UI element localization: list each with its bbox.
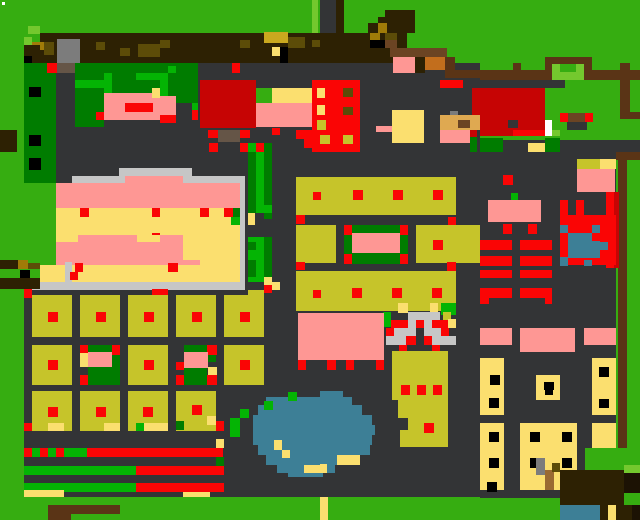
- silver-roof-block: [72, 176, 125, 183]
- window-block: [487, 482, 497, 492]
- red-marker-block: [192, 405, 202, 415]
- fence-block: [616, 152, 640, 160]
- gold-foliage-block: [378, 23, 387, 33]
- fence-block: [620, 63, 630, 119]
- pink-roof-block: [488, 200, 541, 222]
- red-marker-block: [96, 407, 106, 417]
- soil-block: [385, 10, 415, 33]
- silver-roof-block: [394, 328, 416, 336]
- red-marker-block: [240, 312, 250, 322]
- dark-red-roof-block: [470, 130, 477, 137]
- pale-roof-block: [304, 465, 320, 473]
- water-block: [592, 225, 600, 233]
- dark-red-roof-block: [200, 80, 256, 128]
- bright-hedge-block: [32, 448, 40, 457]
- window-block: [24, 56, 32, 63]
- red-marker-block: [48, 407, 58, 417]
- red-marker-block: [48, 312, 58, 322]
- red-marker-block: [592, 233, 600, 241]
- red-marker-block: [520, 270, 552, 278]
- silver-roof-block: [408, 320, 416, 328]
- red-marker-block: [200, 208, 209, 217]
- dark-hedge-block: [264, 143, 272, 152]
- dark-hedge-block: [264, 237, 272, 277]
- dark-red-roof-block: [480, 130, 513, 136]
- olive-foliage-block: [343, 88, 353, 97]
- fence-block: [584, 57, 592, 80]
- red-marker-block: [416, 320, 424, 328]
- window-block: [562, 432, 572, 442]
- silver-roof-block: [183, 176, 245, 183]
- red-marker-block: [192, 110, 198, 120]
- pale-roof-block: [274, 440, 282, 450]
- window-block: [370, 40, 385, 48]
- pink-roof-block: [480, 328, 512, 345]
- pale-roof-block: [608, 505, 616, 520]
- lime-foliage-block: [28, 26, 40, 34]
- white-dot-block: [545, 130, 552, 136]
- window-block: [599, 399, 609, 408]
- red-marker-block: [296, 215, 305, 224]
- red-marker-block: [207, 375, 217, 385]
- red-marker-block: [433, 240, 443, 250]
- red-marker-block: [48, 360, 58, 370]
- silver-roof-block: [119, 168, 192, 176]
- red-marker-block: [136, 466, 224, 475]
- pale-roof-block: [320, 464, 327, 473]
- pink-roof-block: [256, 103, 312, 127]
- red-marker-block: [448, 217, 456, 225]
- bright-hedge-block: [160, 73, 168, 97]
- red-marker-block: [432, 320, 448, 328]
- bright-hedge-block: [264, 401, 273, 410]
- red-marker-block: [480, 240, 512, 250]
- red-marker-block: [440, 80, 463, 88]
- red-marker-block: [296, 130, 312, 139]
- red-marker-block: [87, 448, 223, 457]
- window-block: [489, 458, 499, 468]
- red-marker-block: [160, 115, 176, 123]
- pale-roof-block: [208, 367, 217, 375]
- red-marker-block: [346, 360, 354, 370]
- pale-roof-block: [398, 303, 408, 313]
- fence-block: [545, 57, 552, 80]
- red-marker-block: [376, 360, 384, 370]
- pale-roof-block: [320, 497, 328, 520]
- pale-roof-block: [317, 88, 325, 98]
- red-marker-block: [352, 288, 362, 298]
- pale-roof-block: [317, 105, 325, 115]
- lime-foliage-block: [24, 37, 32, 45]
- pale-roof-block: [216, 439, 224, 448]
- dark-hedge-block: [112, 355, 120, 367]
- dark-hedge-block: [88, 367, 120, 385]
- soil-block: [600, 505, 608, 520]
- dark-hedge-block: [248, 152, 256, 213]
- yellow-building-block: [343, 135, 353, 144]
- red-marker-block: [503, 175, 513, 185]
- dark-hedge-block: [248, 260, 256, 277]
- red-marker-block: [136, 483, 224, 492]
- dark-hedge-block: [264, 152, 272, 205]
- window-block: [599, 367, 609, 377]
- red-marker-block: [480, 256, 512, 266]
- red-marker-block: [480, 270, 512, 278]
- pale-roof-block: [448, 319, 456, 328]
- red-marker-block: [125, 103, 153, 112]
- grass-block: [560, 64, 576, 72]
- fence-block: [447, 70, 480, 78]
- red-marker-block: [313, 192, 321, 200]
- red-marker-block: [406, 336, 416, 345]
- red-marker-block: [56, 448, 64, 457]
- window-block: [489, 432, 499, 442]
- pale-roof-block: [392, 110, 424, 143]
- copper-roof-block: [425, 57, 447, 70]
- water-block: [560, 257, 568, 266]
- silver-roof-block: [424, 328, 441, 336]
- pale-roof-block: [152, 88, 160, 98]
- road-block: [320, 0, 336, 33]
- red-marker-block: [393, 190, 403, 200]
- lime-foliage-block: [552, 130, 560, 136]
- taupe-door-block: [57, 63, 75, 73]
- dark-hedge-block: [184, 368, 207, 385]
- pink-roof-block: [88, 352, 112, 368]
- red-marker-block: [240, 360, 250, 370]
- pale-roof-block: [272, 88, 312, 103]
- soil-block: [0, 260, 18, 269]
- pale-roof-block: [56, 235, 78, 242]
- yellow-building-block: [398, 400, 408, 418]
- red-marker-block: [344, 254, 352, 264]
- window-block: [280, 47, 288, 63]
- olive-foliage-block: [312, 40, 320, 47]
- red-marker-block: [344, 225, 352, 235]
- trunk-block: [568, 113, 585, 122]
- dark-hedge-block: [248, 242, 256, 250]
- red-marker-block: [585, 113, 593, 122]
- dark-hedge-block: [480, 138, 503, 152]
- red-marker-block: [224, 208, 233, 217]
- pink-roof-block: [520, 328, 575, 352]
- water-block: [253, 415, 372, 425]
- red-marker-block: [447, 262, 456, 271]
- red-marker-block: [24, 448, 32, 457]
- dark-hedge-block: [216, 457, 224, 466]
- red-marker-block: [112, 345, 120, 355]
- pale-roof-block: [137, 235, 160, 242]
- pink-roof-block: [393, 57, 415, 73]
- gold-roof-block: [264, 32, 288, 43]
- red-marker-block: [400, 254, 408, 264]
- stone-block: [536, 458, 545, 475]
- bright-hedge-block: [24, 466, 136, 475]
- fence-block: [622, 112, 640, 119]
- red-marker-block: [176, 375, 184, 385]
- fence-block: [592, 70, 640, 80]
- yellow-building-block: [296, 225, 336, 263]
- red-marker-block: [520, 256, 552, 266]
- pale-roof-block: [282, 450, 290, 458]
- bright-hedge-block: [136, 423, 144, 431]
- pale-roof-block: [592, 423, 616, 448]
- window-block: [29, 158, 41, 170]
- door-block: [545, 470, 554, 490]
- soil-block: [415, 57, 425, 73]
- red-marker-block: [480, 288, 489, 304]
- pink-roof-block: [577, 169, 615, 192]
- fence-block: [513, 63, 521, 70]
- red-marker-block: [298, 360, 306, 370]
- red-marker-block: [80, 208, 89, 217]
- olive-foliage-block: [343, 107, 353, 115]
- dark-hedge-block: [470, 137, 477, 152]
- dark-hedge-block: [184, 345, 207, 352]
- pale-roof-block: [264, 277, 272, 285]
- dark-hedge-block: [208, 355, 216, 362]
- olive-foliage-block: [44, 42, 54, 55]
- red-marker-block: [192, 312, 202, 322]
- red-marker-block: [528, 224, 537, 234]
- bright-hedge-block: [231, 217, 240, 225]
- road-block: [567, 122, 587, 130]
- olive-foliage-block: [160, 40, 170, 48]
- red-marker-block: [75, 263, 83, 272]
- red-marker-block: [353, 190, 363, 200]
- dark-hedge-block: [264, 213, 272, 219]
- red-marker-block: [143, 407, 153, 417]
- yellow-building-block: [317, 120, 326, 130]
- lime-foliage-block: [312, 0, 318, 33]
- pink-roof-block: [125, 176, 183, 183]
- red-marker-block: [209, 143, 218, 152]
- trunk-block: [390, 48, 447, 57]
- olive-foliage-block: [120, 48, 130, 56]
- grass-block: [256, 88, 273, 103]
- red-marker-block: [144, 360, 154, 370]
- shadow-block: [632, 505, 640, 520]
- road-block: [416, 328, 424, 345]
- bright-hedge-block: [264, 205, 272, 213]
- red-marker-block: [240, 130, 250, 138]
- red-marker-block: [400, 225, 408, 235]
- red-marker-block: [503, 224, 512, 234]
- bright-hedge-block: [240, 409, 249, 418]
- soil-block: [0, 278, 40, 289]
- red-marker-block: [264, 285, 272, 293]
- road-block: [480, 80, 565, 88]
- window-block: [562, 458, 572, 468]
- red-marker-block: [96, 112, 104, 120]
- olive-foliage-block: [28, 263, 40, 269]
- red-marker-block: [401, 385, 410, 395]
- dark-hedge-block: [176, 421, 184, 430]
- olive-foliage-block: [96, 42, 105, 50]
- red-marker-block: [40, 448, 48, 457]
- yellow-building-block: [400, 430, 408, 447]
- water-block: [253, 435, 372, 445]
- pink-roof-block: [160, 235, 183, 242]
- bright-hedge-block: [168, 66, 176, 73]
- pale-roof-block: [144, 423, 168, 431]
- red-marker-block: [208, 130, 218, 138]
- soil-block: [0, 130, 17, 152]
- red-marker-block: [96, 312, 106, 322]
- bright-hedge-block: [48, 448, 56, 457]
- silver-roof-block: [424, 320, 432, 328]
- red-marker-block: [417, 385, 426, 395]
- red-marker-block: [70, 272, 78, 280]
- window-block: [545, 390, 553, 395]
- water-block: [253, 425, 375, 435]
- window-block: [490, 375, 500, 385]
- white-dot-block: [545, 120, 552, 130]
- water-block: [560, 225, 568, 233]
- soil-block: [336, 0, 344, 33]
- pale-roof-block: [48, 423, 64, 431]
- dark-hedge-block: [545, 138, 560, 152]
- red-marker-block: [433, 190, 443, 200]
- yellow-building-block: [320, 135, 330, 144]
- pink-roof-block: [160, 96, 176, 115]
- road-block: [508, 120, 518, 128]
- red-marker-block: [441, 328, 449, 336]
- red-marker-block: [520, 240, 552, 250]
- pink-roof-block: [56, 183, 240, 208]
- red-marker-block: [424, 423, 434, 433]
- red-marker-block: [545, 288, 552, 304]
- silver-roof-block: [32, 282, 245, 290]
- red-marker-block: [296, 262, 305, 270]
- water-block: [600, 242, 608, 250]
- pale-roof-block: [207, 416, 216, 425]
- bright-hedge-block: [64, 448, 87, 457]
- pink-roof-block: [78, 235, 137, 242]
- bright-hedge-block: [136, 73, 160, 80]
- pale-roof-block: [80, 353, 88, 367]
- red-marker-block: [391, 320, 408, 328]
- shadow-block: [624, 473, 640, 493]
- silver-roof-block: [240, 176, 245, 282]
- bright-hedge-block: [256, 152, 264, 213]
- red-marker-block: [433, 385, 442, 395]
- bright-hedge-block: [75, 80, 104, 88]
- red-marker-block: [144, 312, 154, 322]
- fence-block: [48, 513, 71, 520]
- gold-foliage-block: [18, 260, 28, 269]
- window-block: [544, 382, 554, 390]
- water-block: [560, 505, 600, 520]
- red-marker-block: [327, 360, 336, 370]
- pink-roof-block: [298, 313, 384, 360]
- olive-foliage-block: [288, 37, 305, 48]
- game-map-viewport[interactable]: [0, 0, 640, 520]
- red-marker-block: [232, 63, 240, 73]
- red-marker-block: [560, 113, 568, 122]
- red-marker-block: [256, 143, 264, 152]
- pale-roof-block: [528, 143, 545, 152]
- bright-hedge-block: [104, 73, 112, 93]
- red-marker-block: [152, 208, 160, 217]
- pink-roof-block: [352, 233, 400, 253]
- bright-hedge-block: [248, 143, 256, 152]
- red-marker-block: [304, 139, 312, 148]
- olive-foliage-block: [138, 44, 160, 57]
- stone-block: [57, 39, 80, 63]
- silver-roof-block: [408, 312, 440, 320]
- red-marker-block: [392, 288, 402, 298]
- red-marker-block: [207, 345, 217, 355]
- pale-roof-block: [248, 213, 255, 225]
- pink-roof-block: [376, 126, 392, 132]
- yellow-building-block: [577, 159, 600, 169]
- trunk-block: [458, 120, 470, 128]
- red-marker-block: [432, 288, 442, 298]
- road-block: [592, 140, 640, 152]
- water-block: [258, 405, 362, 415]
- pink-roof-block: [584, 328, 616, 345]
- pink-roof-block: [440, 130, 470, 143]
- water-block: [266, 397, 352, 405]
- red-marker-block: [272, 128, 280, 135]
- pink-roof-block: [184, 352, 208, 368]
- red-marker-block: [513, 130, 545, 136]
- red-marker-block: [24, 289, 32, 298]
- water-block: [584, 260, 592, 266]
- pale-roof-block: [272, 282, 280, 290]
- red-marker-block: [216, 421, 224, 431]
- red-marker-block: [313, 290, 321, 298]
- bright-hedge-block: [288, 392, 297, 401]
- white-dot-block: [2, 2, 5, 5]
- pink-roof-block: [56, 242, 183, 260]
- pale-roof-block: [337, 455, 360, 465]
- red-marker-block: [24, 423, 32, 431]
- olive-foliage-block: [240, 40, 250, 48]
- red-marker-block: [424, 336, 432, 345]
- fence-block: [618, 160, 627, 448]
- pale-roof-block: [183, 235, 240, 242]
- bright-hedge-block: [230, 418, 240, 437]
- window-block: [489, 398, 499, 408]
- taupe-door-block: [218, 130, 240, 142]
- red-marker-block: [80, 375, 88, 385]
- bright-hedge-block: [383, 312, 391, 327]
- pale-roof-block: [104, 423, 120, 431]
- trunk-block: [385, 40, 397, 48]
- olive-foliage-block: [552, 463, 560, 472]
- red-marker-block: [47, 63, 57, 73]
- red-marker-block: [176, 362, 184, 370]
- soil-block: [560, 470, 624, 505]
- red-marker-block: [168, 263, 178, 272]
- window-block: [29, 135, 41, 146]
- pale-roof-block: [600, 159, 616, 169]
- yellow-building-block: [416, 225, 480, 263]
- pale-roof-block: [183, 242, 240, 260]
- red-marker-block: [386, 328, 394, 336]
- window-block: [530, 432, 540, 442]
- window-block: [29, 87, 41, 97]
- red-marker-block: [576, 200, 584, 215]
